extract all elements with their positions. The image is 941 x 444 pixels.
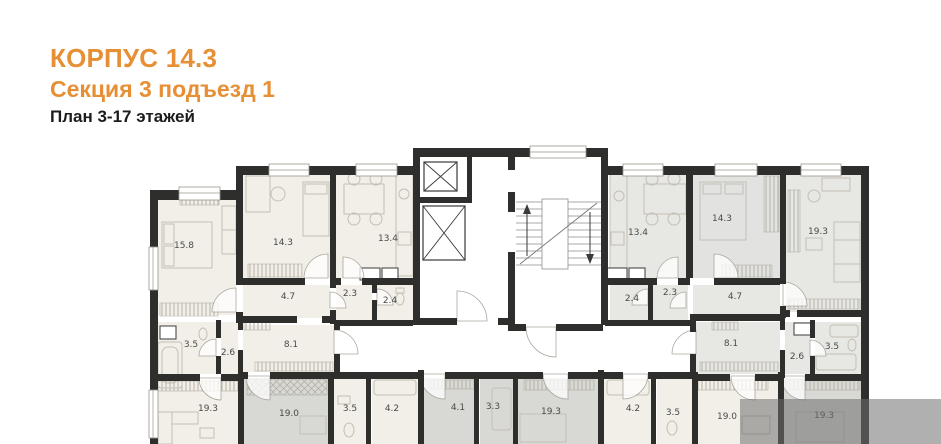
room-area-label: 2.6 [221,348,236,358]
room-area-label: 3.5 [666,408,680,418]
room-area-label: 19.0 [717,412,737,422]
room-area-label: 4.2 [385,404,399,414]
room-area-label: 2.3 [663,288,677,298]
room-area-label: 4.2 [626,404,640,414]
staircase-icon [516,199,601,269]
room-area-label: 2.4 [383,296,398,306]
floor-plan-page: КОРПУС 14.3 Секция 3 подъезд 1 План 3-17… [0,0,941,444]
washer-icon [160,326,176,339]
room-area-label: 13.4 [628,228,648,238]
room-area-label: 15.8 [174,241,194,251]
room-area-label: 19.3 [198,404,218,414]
room-area-label: 14.3 [273,238,293,248]
room-area-label: 2.6 [790,352,805,362]
room-area-label: 14.3 [712,214,732,224]
elevator-shaft-icon [423,162,465,260]
room-area-label: 4.7 [728,292,742,302]
room-area-label: 2.3 [343,289,357,299]
room-area-label: 8.1 [284,340,298,350]
room-area-label: 19.3 [541,407,561,417]
room-area-label: 13.4 [378,234,398,244]
watermark-overlay [740,399,941,444]
room-area-label: 3.5 [343,404,357,414]
room-area-label: 3.5 [184,340,198,350]
room-area-label: 19.3 [808,227,828,237]
room-area-label: 4.1 [451,403,465,413]
washer-icon [794,323,812,335]
room-area-label: 4.7 [281,292,295,302]
room-area-label: 3.5 [825,342,839,352]
room-area-label: 2.4 [625,294,640,304]
room-area-label: 3.3 [486,402,500,412]
floor-plan-drawing: 15.8 14.3 13.4 4.7 2.3 2.4 3.5 2.6 8.1 1… [0,0,941,444]
room-area-label: 8.1 [724,339,738,349]
room-area-label: 19.0 [279,409,299,419]
